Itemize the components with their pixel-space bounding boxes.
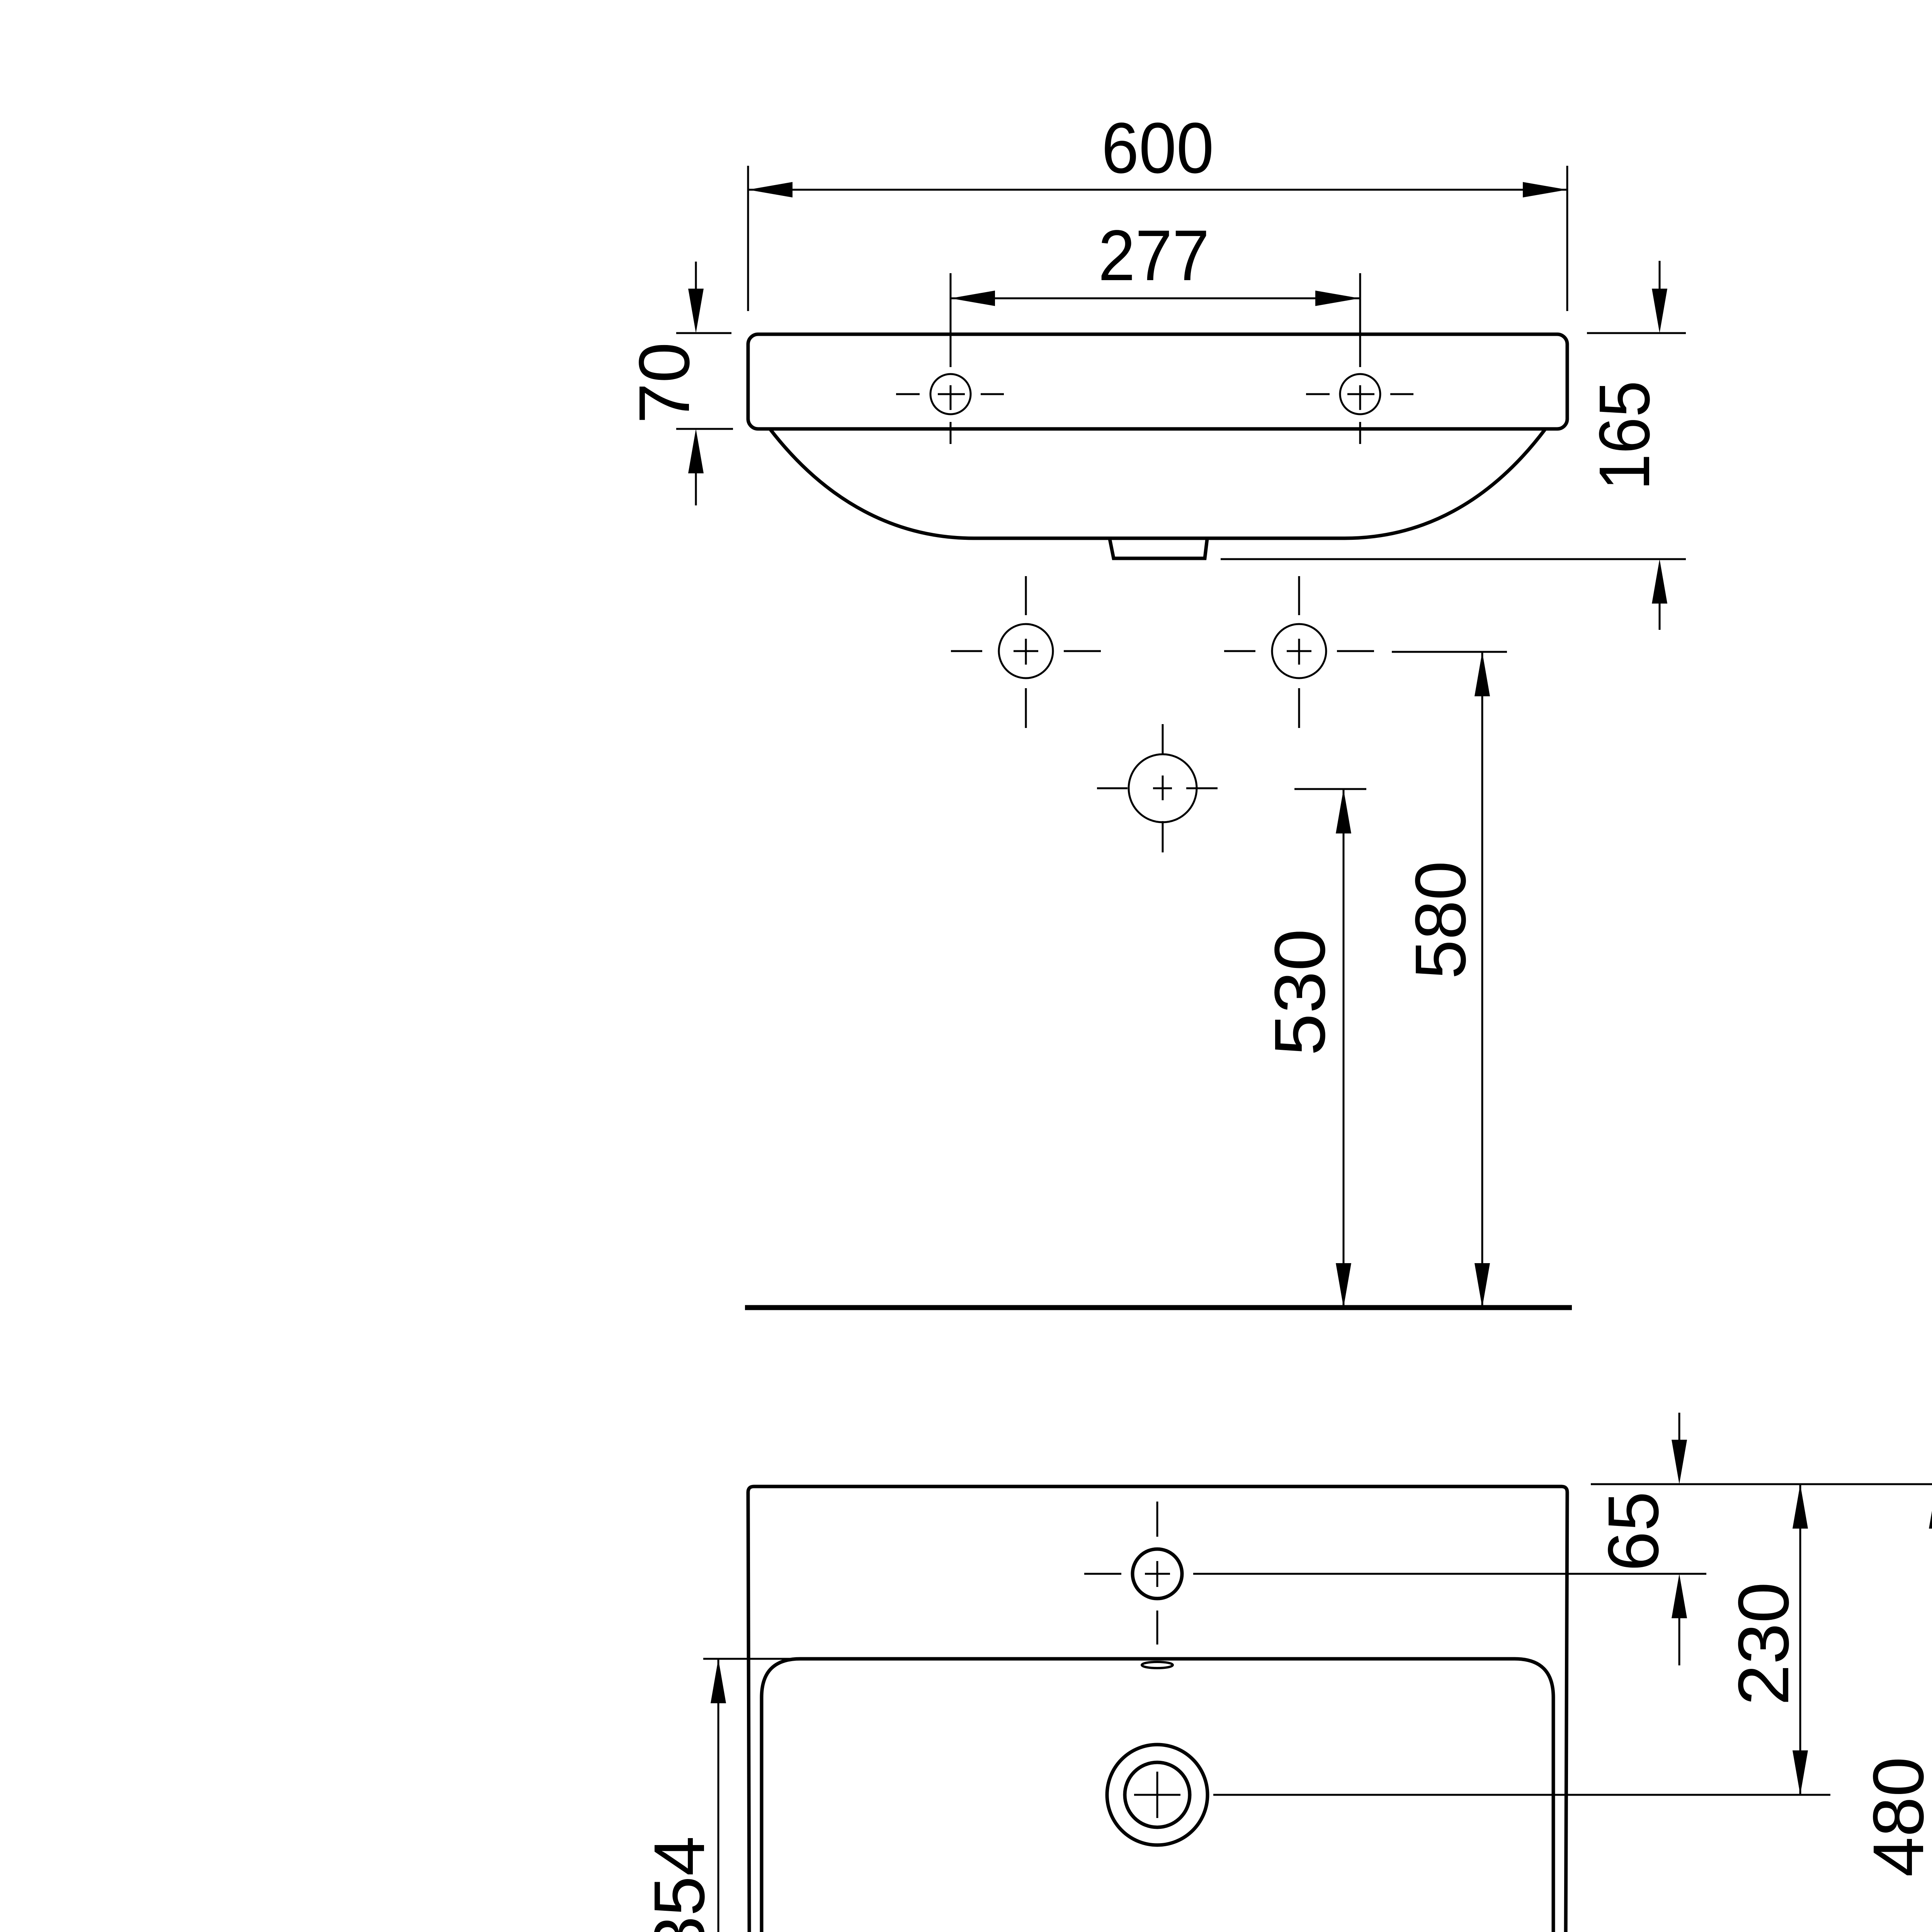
svg-text:277: 277 [1098, 216, 1209, 296]
svg-text:530: 530 [1260, 929, 1340, 1056]
svg-text:354: 354 [639, 1836, 719, 1932]
svg-text:580: 580 [1401, 861, 1481, 979]
svg-text:600: 600 [1102, 108, 1214, 188]
svg-text:70: 70 [624, 342, 704, 424]
svg-text:65: 65 [1594, 1492, 1673, 1571]
svg-text:165: 165 [1585, 381, 1665, 490]
svg-text:480: 480 [1859, 1757, 1932, 1877]
svg-text:230: 230 [1724, 1582, 1804, 1706]
